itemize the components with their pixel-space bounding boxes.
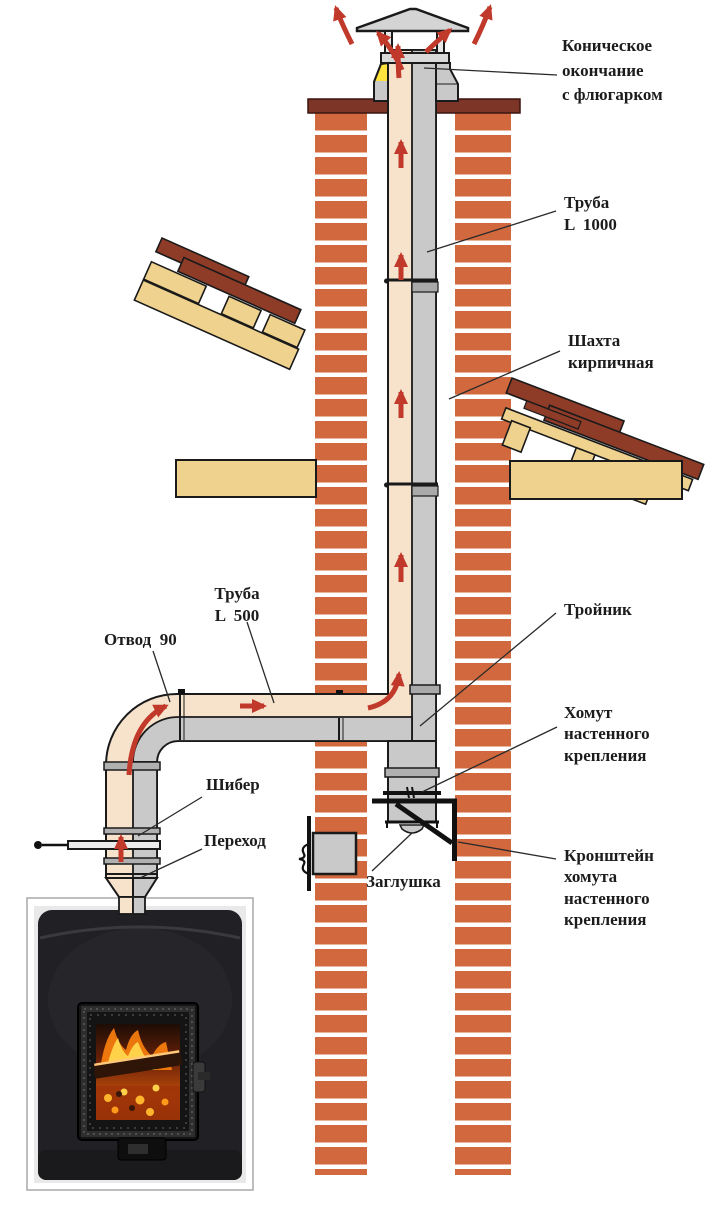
damper-handle xyxy=(34,841,160,849)
ceiling-beam-right xyxy=(510,461,682,499)
ceiling-beam-left xyxy=(176,460,316,497)
roof-left xyxy=(134,238,317,497)
label-damper: Шибер xyxy=(206,774,260,796)
flow-arrow-icon xyxy=(336,8,352,44)
tee-lower-section xyxy=(388,741,436,822)
flow-arrow-icon xyxy=(474,7,490,44)
label-adapter: Переход xyxy=(204,830,266,852)
brick-column-left xyxy=(315,113,367,1175)
flow-arrow-icon xyxy=(398,46,399,78)
damper-top-joint xyxy=(104,828,160,834)
label-elbow-90: Отвод 90 xyxy=(104,629,177,651)
pipe-vertical-shadow xyxy=(412,50,436,741)
label-pipe-1000: Труба L 1000 xyxy=(564,192,617,237)
brick-column-right xyxy=(455,113,511,1175)
label-tee: Тройник xyxy=(564,599,632,621)
pipe-horizontal-shadow xyxy=(133,717,412,762)
roof-right xyxy=(487,378,708,519)
label-conical-termination: Коническое окончание с флюгарком xyxy=(562,34,663,108)
label-brick-shaft: Шахта кирпичная xyxy=(568,330,654,375)
chimney-installation-diagram: Коническое окончание с флюгарком Труба L… xyxy=(0,0,720,1220)
stove-photo xyxy=(27,898,253,1190)
tee-bottom-joint xyxy=(385,768,439,777)
condensate-plug xyxy=(400,825,424,833)
label-pipe-500: Труба L 500 xyxy=(206,583,268,628)
label-wall-clamp: Хомут настенного крепления xyxy=(564,702,650,766)
label-plug: Заглушка xyxy=(366,871,441,893)
tee-top-joint xyxy=(410,685,440,694)
label-bracket: Кронштейн хомута настенного крепления xyxy=(564,845,654,931)
adapter-cone xyxy=(106,878,133,897)
rain-cap-hat xyxy=(357,9,468,31)
